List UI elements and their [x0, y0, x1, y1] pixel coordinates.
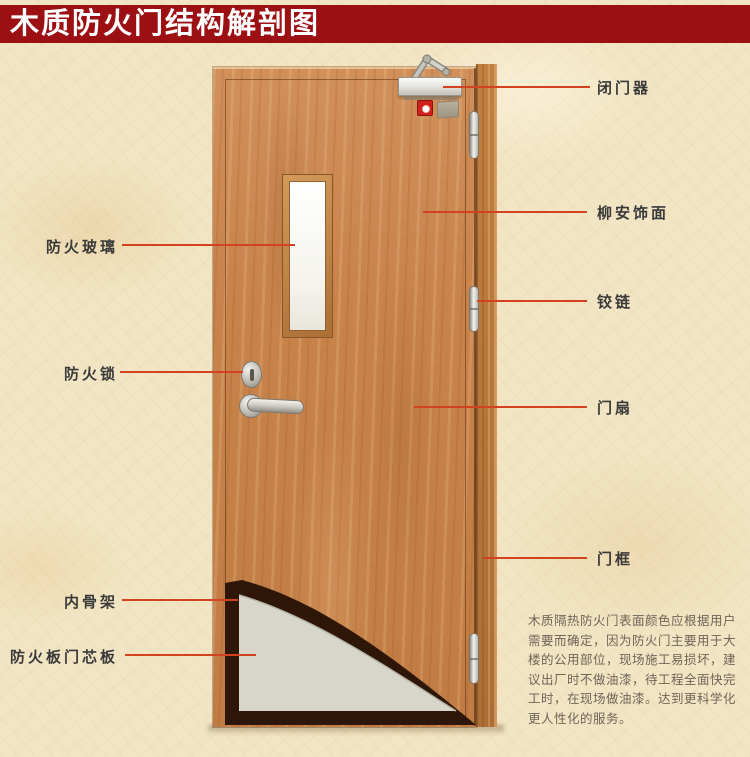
label-inner-skeleton: 内骨架 — [0, 591, 118, 612]
alarm-indicator-dot — [422, 105, 430, 113]
title-banner: 木质防火门结构解剖图 — [0, 5, 750, 43]
fire-door-diagram-page: 木质防火门结构解剖图 — [0, 0, 750, 757]
callout-line-door-frame — [483, 557, 587, 559]
callout-line-hinge — [477, 300, 587, 302]
note-line: 议出厂时不做油漆，待工程全面快完 — [528, 671, 748, 691]
label-hinge: 铰链 — [597, 291, 633, 312]
fireproof-lock-cylinder — [241, 361, 262, 388]
label-door-closer: 闭门器 — [597, 77, 651, 98]
hinge-middle — [469, 286, 479, 332]
keyhole — [250, 369, 254, 381]
metal-plate — [437, 100, 459, 119]
label-fire-lock: 防火锁 — [0, 363, 118, 384]
fire-board-core-shape — [239, 595, 456, 711]
door-frame — [476, 64, 497, 727]
hinge-knuckle — [470, 308, 478, 310]
callout-line-fire-lock — [120, 371, 243, 373]
note-line: 工时，在现场做油漆。达到更科学化 — [528, 690, 748, 710]
label-fire-glass: 防火玻璃 — [0, 236, 118, 257]
callout-line-veneer — [423, 211, 587, 213]
door-cutaway — [212, 577, 478, 728]
callout-line-core-board — [125, 654, 256, 656]
label-veneer: 柳安饰面 — [597, 202, 669, 223]
page-title: 木质防火门结构解剖图 — [0, 5, 750, 43]
door-handle-lever — [247, 398, 305, 415]
hinge-knuckle — [470, 658, 478, 660]
label-core-board: 防火板门芯板 — [0, 646, 118, 667]
hinge-bottom — [469, 633, 479, 684]
callout-line-door-leaf — [414, 406, 587, 408]
label-door-leaf: 门扇 — [597, 397, 633, 418]
note-line: 木质隔热防火门表面颜色应根据用户 — [528, 612, 748, 632]
callout-line-fire-glass — [122, 244, 295, 246]
hinge-top — [469, 111, 479, 159]
callout-line-inner-skeleton — [122, 599, 238, 601]
fireproof-glass — [289, 181, 326, 331]
note-line: 更人性化的服务。 — [528, 710, 748, 730]
note-text: 木质隔热防火门表面颜色应根据用户 需要而确定，因为防火门主要用于大 楼的公用部位… — [528, 612, 748, 729]
note-line: 需要而确定，因为防火门主要用于大 — [528, 632, 748, 652]
callout-line-door-closer — [443, 86, 590, 88]
hinge-knuckle — [470, 134, 478, 136]
note-line: 楼的公用部位，现场施工易损坏，建 — [528, 651, 748, 671]
alarm-indicator — [417, 100, 433, 116]
label-door-frame: 门框 — [597, 548, 633, 569]
